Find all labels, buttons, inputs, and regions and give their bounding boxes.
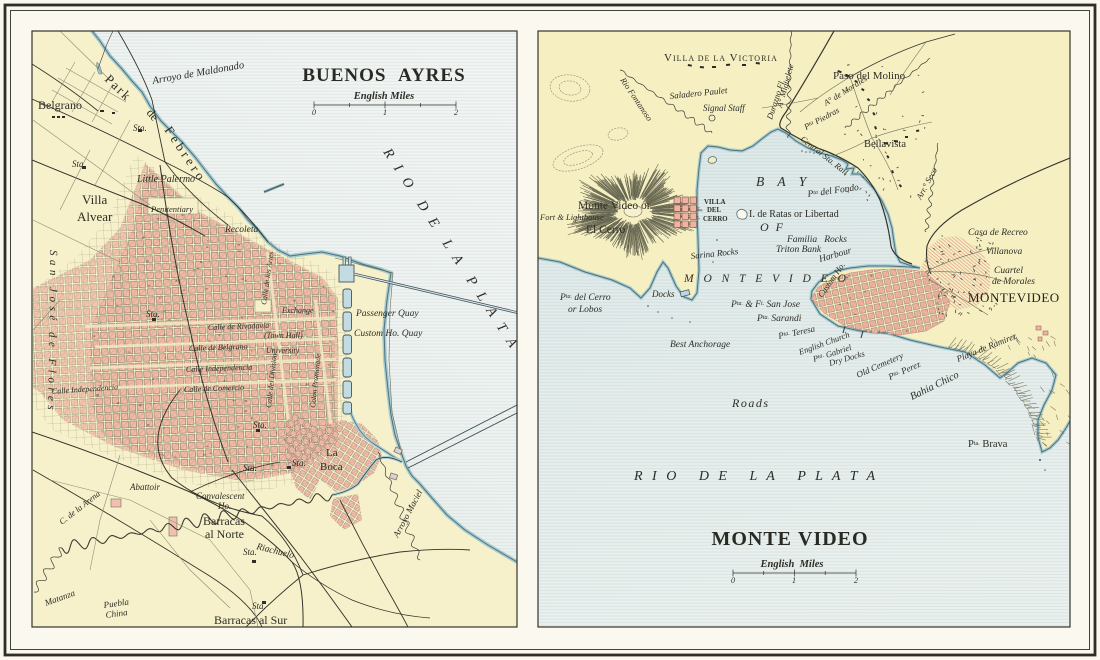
svg-text:Sta.: Sta.: [72, 159, 86, 169]
svg-text:Passenger Quay: Passenger Quay: [355, 309, 419, 319]
svg-text:Best Anchorage: Best Anchorage: [670, 340, 730, 350]
svg-text:Alvear: Alvear: [77, 209, 113, 224]
svg-text:Little Palermo: Little Palermo: [136, 174, 195, 185]
svg-text:Custom Ho. Quay: Custom Ho. Quay: [354, 329, 423, 339]
svg-text:al Norte: al Norte: [205, 527, 244, 541]
svg-text:Abattoir: Abattoir: [129, 482, 160, 492]
svg-text:BUENOS AYRES: BUENOS AYRES: [302, 65, 465, 86]
svg-text:Sta.: Sta.: [243, 547, 257, 557]
svg-text:Penitentiary: Penitentiary: [150, 204, 193, 214]
svg-text:La: La: [326, 447, 338, 459]
svg-text:B A Y: B A Y: [756, 174, 811, 189]
svg-text:Sta.: Sta.: [133, 123, 147, 133]
svg-text:MONTEVIDEO: MONTEVIDEO: [968, 290, 1060, 305]
svg-text:1: 1: [792, 576, 796, 585]
svg-text:R I O D E L A P L A T A: R I O D E L A P L A T A: [633, 469, 878, 484]
svg-text:O F: O F: [760, 220, 785, 234]
svg-text:DEL: DEL: [707, 207, 721, 214]
svg-text:English Miles: English Miles: [759, 559, 823, 570]
svg-text:University: University: [266, 346, 300, 355]
svg-text:Docks: Docks: [651, 289, 675, 299]
svg-text:Roads: Roads: [731, 396, 770, 410]
svg-text:MONTE VIDEO: MONTE VIDEO: [711, 528, 868, 550]
svg-text:Sta.: Sta.: [292, 458, 306, 468]
svg-text:Sta.: Sta.: [253, 420, 267, 430]
svg-text:Villanova: Villanova: [986, 247, 1022, 257]
svg-text:Barracas: Barracas: [203, 514, 245, 528]
svg-text:0: 0: [312, 108, 316, 117]
svg-text:Exchange: Exchange: [281, 306, 314, 315]
svg-text:I. de Ratas or Libertad: I. de Ratas or Libertad: [749, 209, 839, 220]
svg-text:Sta.: Sta.: [243, 463, 257, 473]
svg-text:1: 1: [383, 108, 387, 117]
svg-text:(Town Hall): (Town Hall): [264, 331, 303, 340]
svg-text:Bellavista: Bellavista: [864, 139, 906, 150]
svg-text:Monte Video or: Monte Video or: [578, 200, 651, 212]
svg-text:Ho.: Ho.: [217, 501, 231, 511]
svg-text:Belgrano: Belgrano: [38, 98, 82, 112]
svg-text:VILLA: VILLA: [704, 199, 726, 206]
svg-text:Triton Bank: Triton Bank: [776, 245, 822, 255]
svg-text:Casa de Recreo: Casa de Recreo: [968, 228, 1028, 238]
svg-text:Fort & Lighthouse: Fort & Lighthouse: [539, 212, 604, 222]
svg-text:VILLA DE LA VICTORIA: VILLA DE LA VICTORIA: [664, 52, 778, 64]
svg-text:0: 0: [731, 576, 735, 585]
svg-text:2: 2: [454, 108, 458, 117]
svg-text:2: 2: [854, 576, 858, 585]
svg-text:Convalescent: Convalescent: [196, 491, 245, 501]
svg-text:Familia Rocks: Familia Rocks: [786, 235, 847, 245]
svg-text:Cuartel: Cuartel: [994, 266, 1023, 276]
svg-text:Barracas al Sur: Barracas al Sur: [214, 613, 287, 627]
svg-text:Sta.: Sta.: [252, 601, 266, 611]
svg-text:El Cerro: El Cerro: [586, 224, 626, 236]
svg-text:Boca: Boca: [320, 461, 343, 473]
svg-text:CERRO: CERRO: [703, 216, 728, 223]
svg-text:or Lobos: or Lobos: [568, 305, 602, 315]
svg-text:Signal Staff: Signal Staff: [703, 103, 746, 113]
svg-text:Recoleta: Recoleta: [224, 225, 258, 235]
svg-text:Villa: Villa: [82, 192, 107, 207]
svg-text:Sta.: Sta.: [146, 309, 160, 319]
svg-text:English Miles: English Miles: [353, 91, 414, 102]
svg-text:Paso del Molino: Paso del Molino: [833, 70, 906, 82]
svg-text:de Morales: de Morales: [992, 277, 1035, 287]
